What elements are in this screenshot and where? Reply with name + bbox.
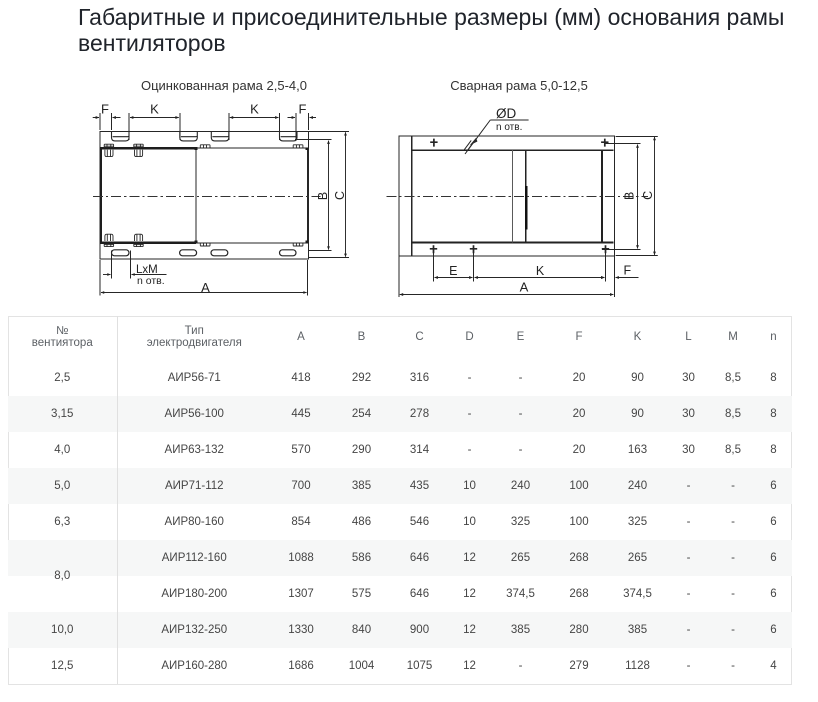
- svg-text:F: F: [101, 102, 109, 117]
- svg-text:F: F: [623, 263, 631, 277]
- svg-text:B: B: [316, 192, 330, 200]
- svg-text:n отв.: n отв.: [496, 122, 522, 133]
- svg-text:A: A: [520, 279, 529, 294]
- svg-text:Сварная рама 5,0-12,5: Сварная рама 5,0-12,5: [450, 78, 588, 93]
- svg-text:ØD: ØD: [496, 106, 517, 121]
- svg-text:K: K: [150, 102, 159, 117]
- svg-text:K: K: [536, 264, 545, 278]
- svg-text:C: C: [333, 191, 347, 200]
- svg-text:n отв.: n отв.: [137, 275, 165, 287]
- svg-text:B: B: [622, 192, 636, 200]
- svg-text:A: A: [201, 280, 210, 295]
- svg-text:C: C: [641, 191, 655, 200]
- svg-text:K: K: [250, 102, 259, 117]
- svg-text:F: F: [299, 102, 307, 117]
- svg-text:Оцинкованная рама 2,5-4,0: Оцинкованная рама 2,5-4,0: [141, 78, 307, 93]
- svg-text:E: E: [449, 264, 457, 278]
